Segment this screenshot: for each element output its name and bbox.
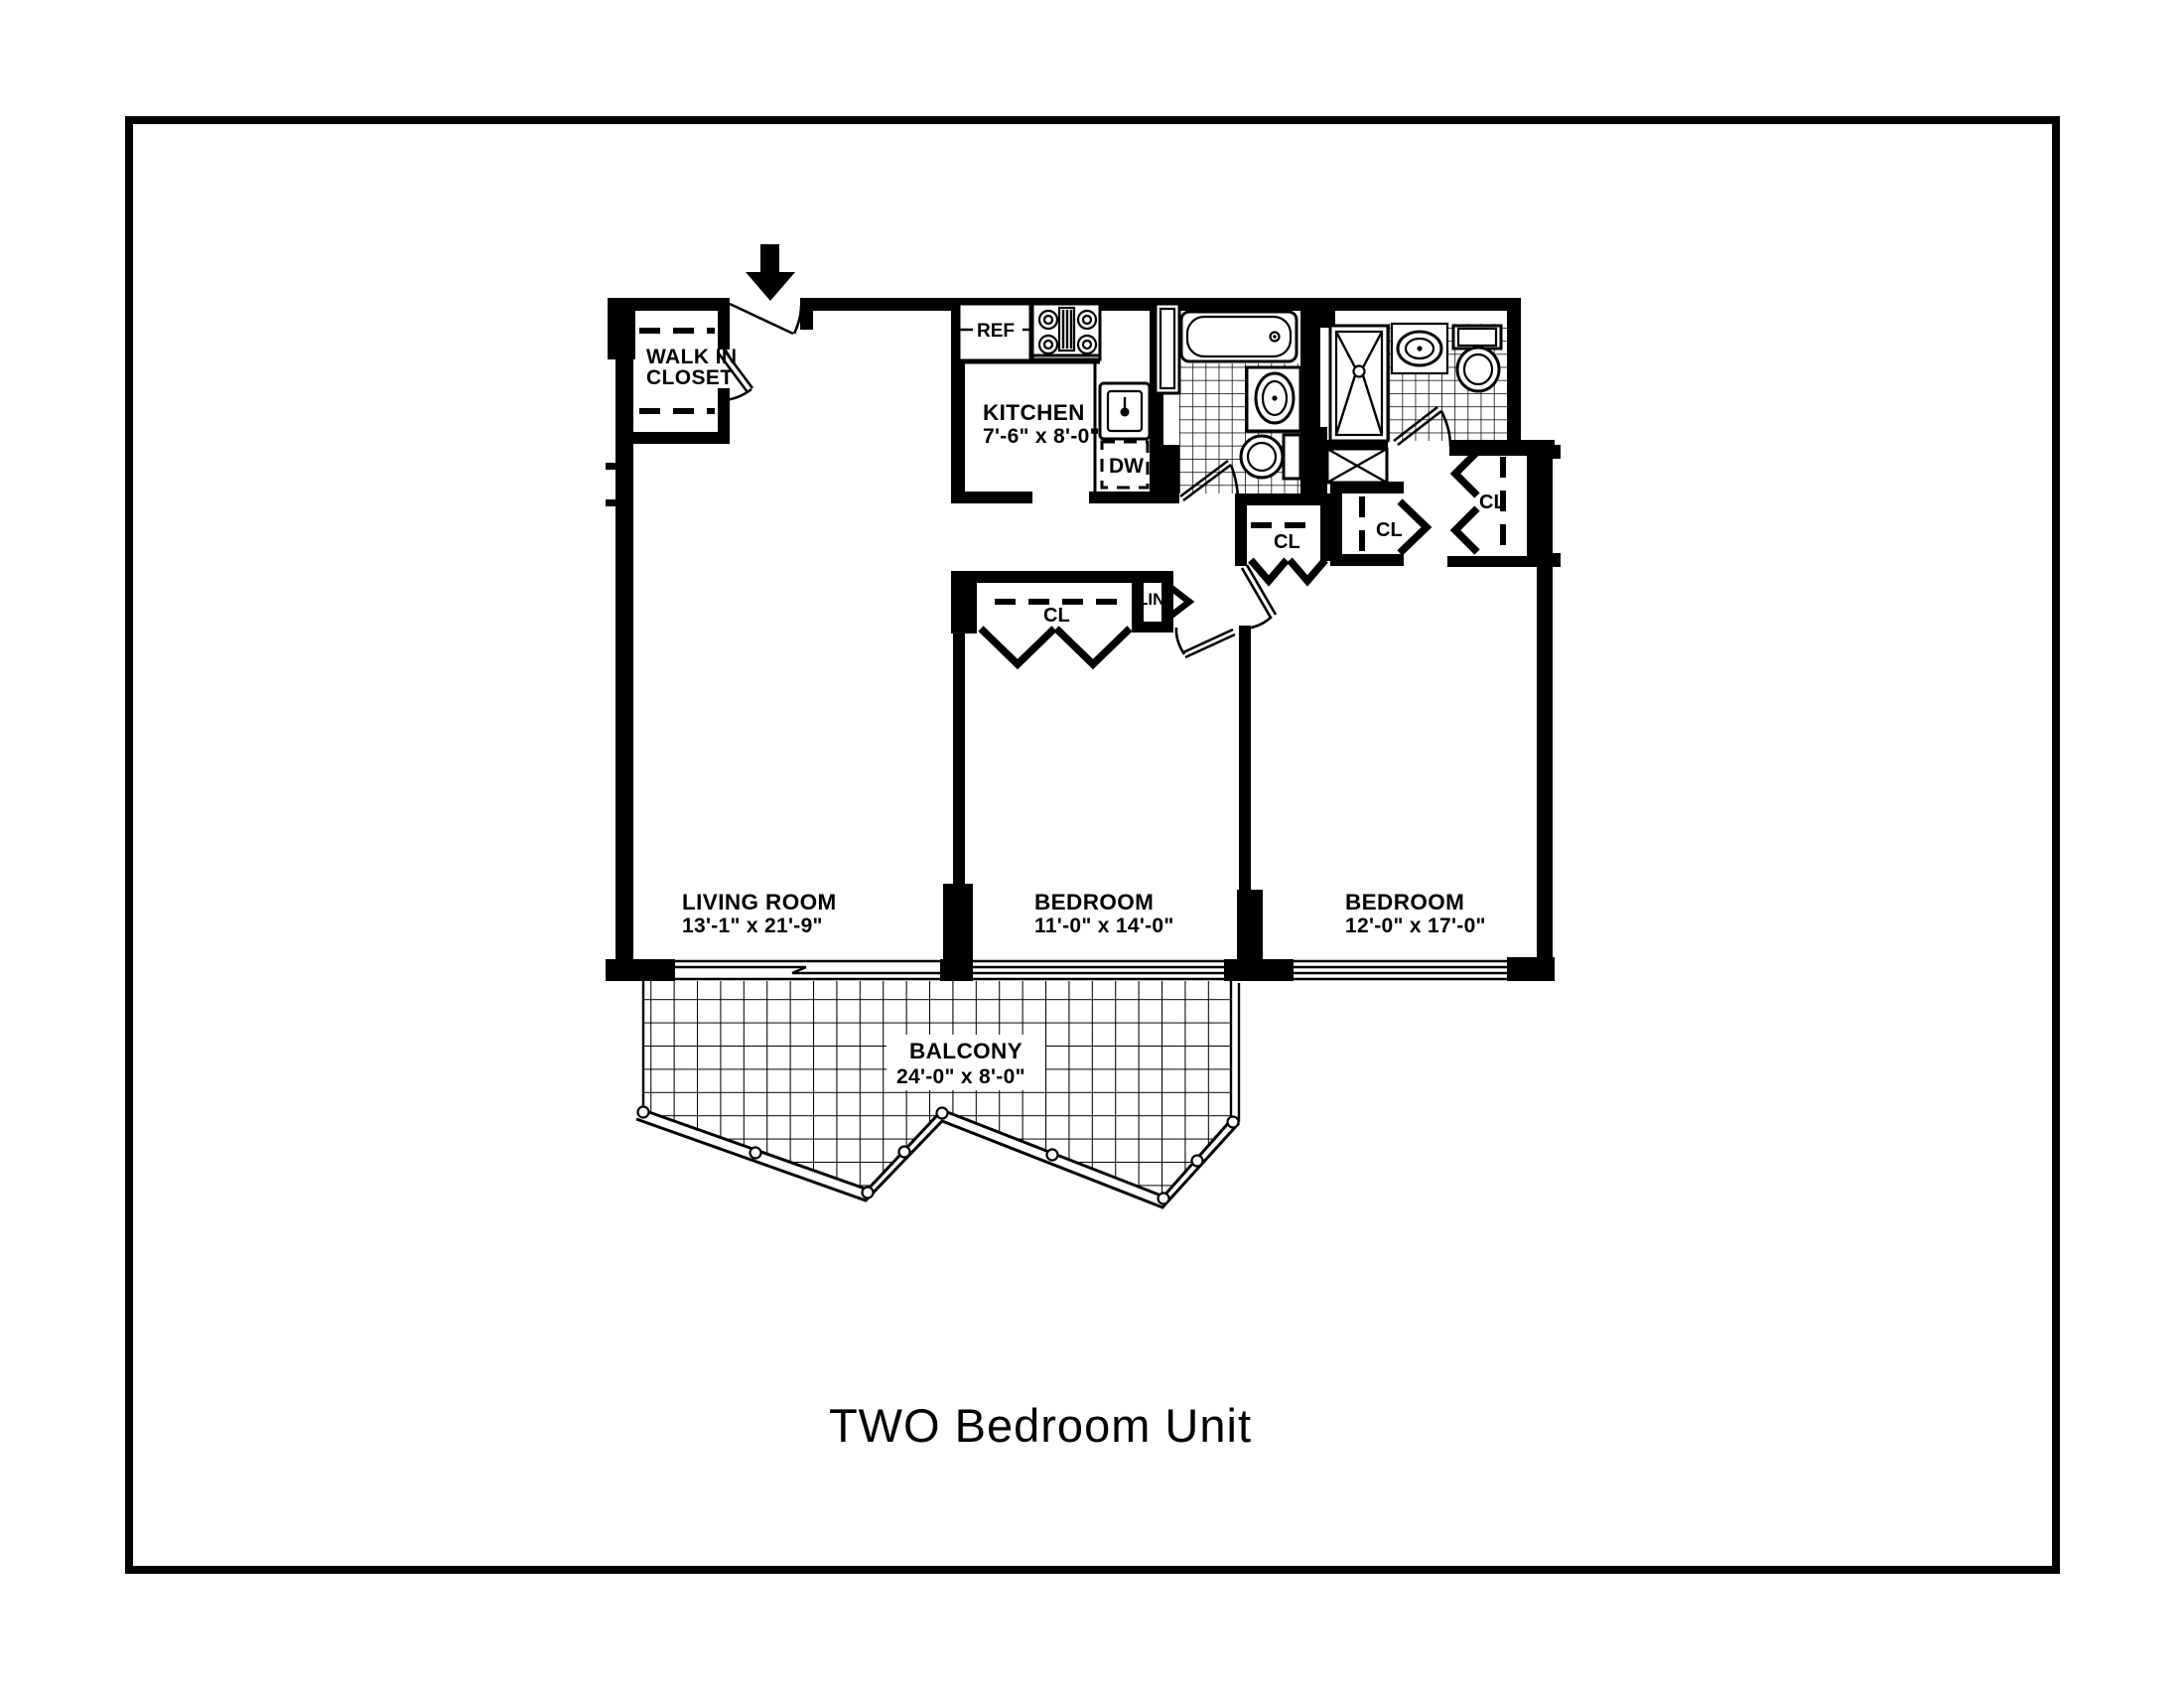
shower-stall bbox=[1330, 326, 1388, 441]
bedroom-1-window bbox=[973, 961, 1224, 979]
plan-title: TWO Bedroom Unit bbox=[829, 1399, 1252, 1452]
bedroom-2-window bbox=[1294, 961, 1507, 979]
kitchen-dims: 7'-6" x 8'-0" bbox=[983, 425, 1100, 448]
walk-in-closet-label-1: WALK IN bbox=[646, 346, 737, 368]
bedroom-1-label: BEDROOM bbox=[1034, 890, 1154, 914]
floor-plan-drawing: WALK IN CLOSET bbox=[0, 0, 2184, 1688]
bathroom-1 bbox=[1179, 312, 1300, 500]
stove bbox=[1032, 304, 1100, 359]
balcony-dims: 24'-0" x 8'-0" bbox=[896, 1065, 1025, 1088]
bedroom-1-door bbox=[1176, 628, 1235, 657]
living-room-label: LIVING ROOM bbox=[682, 890, 837, 914]
floor-plan-page: WALK IN CLOSET bbox=[0, 0, 2184, 1688]
kitchen: DW KITCHEN 7'-6" x 8'-0" REF bbox=[955, 304, 1179, 492]
pantry-cabinet bbox=[1156, 304, 1179, 393]
bathtub bbox=[1181, 312, 1297, 361]
bathroom-1-toilet bbox=[1241, 435, 1300, 479]
living-room-dims: 13'-1" x 21'-9" bbox=[682, 914, 823, 937]
dishwasher-label: DW bbox=[1109, 455, 1144, 478]
hall-closet-1: CL bbox=[1251, 525, 1325, 581]
balcony-deck-grid bbox=[643, 981, 1239, 1209]
bathroom-2-toilet bbox=[1453, 326, 1501, 391]
bathroom-2 bbox=[1327, 324, 1507, 483]
hall-closet-3: CL bbox=[1455, 452, 1506, 553]
bathroom-2-sink bbox=[1392, 324, 1447, 373]
kitchen-label: KITCHEN bbox=[983, 400, 1085, 425]
entry bbox=[730, 244, 801, 334]
closet-label: CL bbox=[1479, 492, 1506, 513]
refrigerator-label: REF bbox=[977, 321, 1015, 342]
windows bbox=[675, 961, 1507, 979]
balcony-label: BALCONY bbox=[909, 1039, 1023, 1063]
bedroom-2-dims: 12'-0" x 17'-0" bbox=[1345, 914, 1486, 937]
living-room-window bbox=[675, 961, 940, 979]
linen-label: LIN. bbox=[1138, 590, 1169, 609]
bedroom-1-dims: 11'-0" x 14'-0" bbox=[1034, 914, 1174, 937]
bathroom-1-sink bbox=[1247, 367, 1300, 431]
closet-label: CL bbox=[1043, 605, 1070, 627]
shaft-box bbox=[1327, 449, 1387, 483]
walk-in-closet-label-2: CLOSET bbox=[646, 366, 734, 389]
hall-closet-2: CL bbox=[1362, 496, 1427, 553]
balcony: BALCONY 24'-0" x 8'-0" bbox=[636, 981, 1239, 1209]
bedroom-2-label: BEDROOM bbox=[1345, 890, 1464, 914]
kitchen-sink bbox=[1100, 383, 1150, 439]
closet-label: CL bbox=[1274, 531, 1300, 553]
walk-in-closet: WALK IN CLOSET bbox=[639, 331, 752, 411]
dishwasher: DW bbox=[1102, 442, 1148, 488]
entry-arrow-icon bbox=[746, 244, 795, 301]
closet-label: CL bbox=[1376, 519, 1403, 541]
bedroom-1-closet: CL bbox=[981, 602, 1130, 664]
